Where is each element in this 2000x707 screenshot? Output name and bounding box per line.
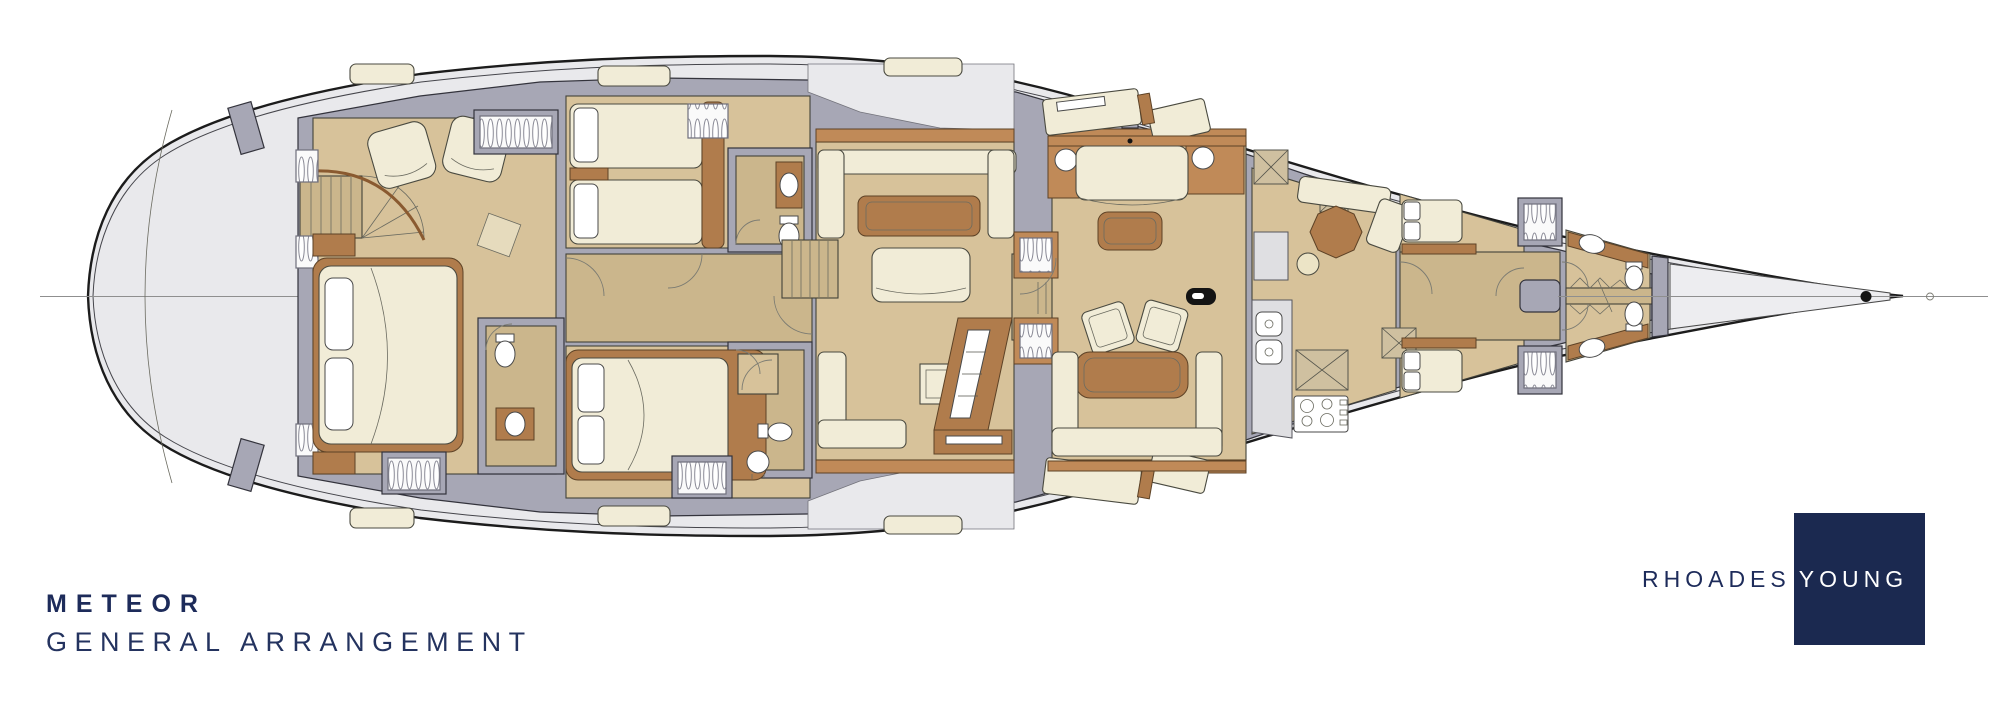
double-guest-cabin bbox=[566, 350, 792, 498]
sink-icon bbox=[747, 451, 769, 473]
island-counter bbox=[1296, 350, 1348, 390]
louvre-locker bbox=[678, 462, 726, 494]
sofa-seat bbox=[818, 420, 906, 448]
corridor-floor bbox=[566, 254, 812, 342]
ga-sheet: METEOR GENERAL ARRANGEMENT RHOADES YOUNG bbox=[0, 0, 2000, 707]
bedside-cabinet bbox=[313, 452, 355, 474]
windlass-box bbox=[1520, 280, 1560, 312]
sink-icon bbox=[1256, 312, 1282, 336]
sofa-back bbox=[818, 150, 1016, 174]
louvre-wardrobe bbox=[388, 458, 440, 490]
deck-hatch-icon bbox=[884, 58, 962, 76]
yacht-name: METEOR bbox=[46, 590, 533, 619]
sofa-arm bbox=[988, 150, 1014, 238]
banquette-sofa bbox=[1076, 146, 1188, 200]
pillow bbox=[325, 278, 353, 350]
louvre-locker bbox=[688, 104, 728, 138]
rhoades-young-logo: RHOADES YOUNG bbox=[1642, 513, 1925, 645]
louvre-locker bbox=[1524, 352, 1556, 388]
sink-icon bbox=[1256, 340, 1282, 364]
forestay-fitting bbox=[1861, 291, 1872, 302]
fridge bbox=[1254, 232, 1288, 280]
lamp-icon bbox=[1192, 147, 1214, 169]
toilet-icon bbox=[495, 341, 515, 367]
louvre-wardrobe bbox=[480, 116, 552, 148]
deck-hatch-icon bbox=[884, 516, 962, 534]
logo-square: YOUNG bbox=[1794, 513, 1925, 645]
pillow bbox=[1404, 372, 1420, 390]
toilet-tank bbox=[758, 424, 768, 438]
deck-hatch-icon bbox=[350, 64, 414, 84]
sofa-seat bbox=[1052, 428, 1222, 456]
drawing-title: GENERAL ARRANGEMENT bbox=[46, 627, 533, 658]
toilet-icon bbox=[1625, 266, 1643, 290]
pillow bbox=[1404, 202, 1420, 220]
pillow bbox=[574, 108, 598, 162]
lamp-icon bbox=[1055, 149, 1077, 171]
stool bbox=[1297, 253, 1319, 275]
pillow bbox=[1404, 222, 1420, 240]
louvre-vent bbox=[296, 150, 318, 182]
binnacle bbox=[1186, 288, 1216, 305]
louvre-locker bbox=[1524, 204, 1556, 240]
pillow bbox=[1404, 352, 1420, 370]
deck-hatch-icon bbox=[598, 66, 670, 86]
logo-word-left: RHOADES bbox=[1642, 566, 1791, 593]
games-table bbox=[1076, 352, 1188, 398]
nightstand bbox=[570, 168, 608, 180]
double-bed bbox=[313, 258, 463, 452]
mess-table bbox=[1310, 206, 1362, 258]
toilet-icon bbox=[768, 423, 792, 441]
pillow bbox=[578, 416, 604, 464]
bedside-cabinet bbox=[313, 234, 355, 256]
pillow bbox=[574, 184, 598, 238]
sofa-arm bbox=[818, 150, 844, 238]
deck-hatch-icon bbox=[350, 508, 414, 528]
toilet-icon bbox=[1625, 302, 1643, 326]
sink-icon bbox=[780, 173, 798, 197]
hatch-box bbox=[1254, 150, 1288, 184]
pillow bbox=[578, 364, 604, 412]
louvre-cabinet bbox=[1020, 238, 1052, 272]
pillow bbox=[325, 358, 353, 430]
louvre-cabinet bbox=[1020, 324, 1052, 358]
deck-hatch-icon bbox=[598, 506, 670, 526]
sink-icon bbox=[505, 412, 525, 436]
logo-word-right: YOUNG bbox=[1794, 566, 1908, 593]
title-block: METEOR GENERAL ARRANGEMENT bbox=[46, 590, 533, 658]
stove-icon bbox=[1294, 396, 1348, 432]
